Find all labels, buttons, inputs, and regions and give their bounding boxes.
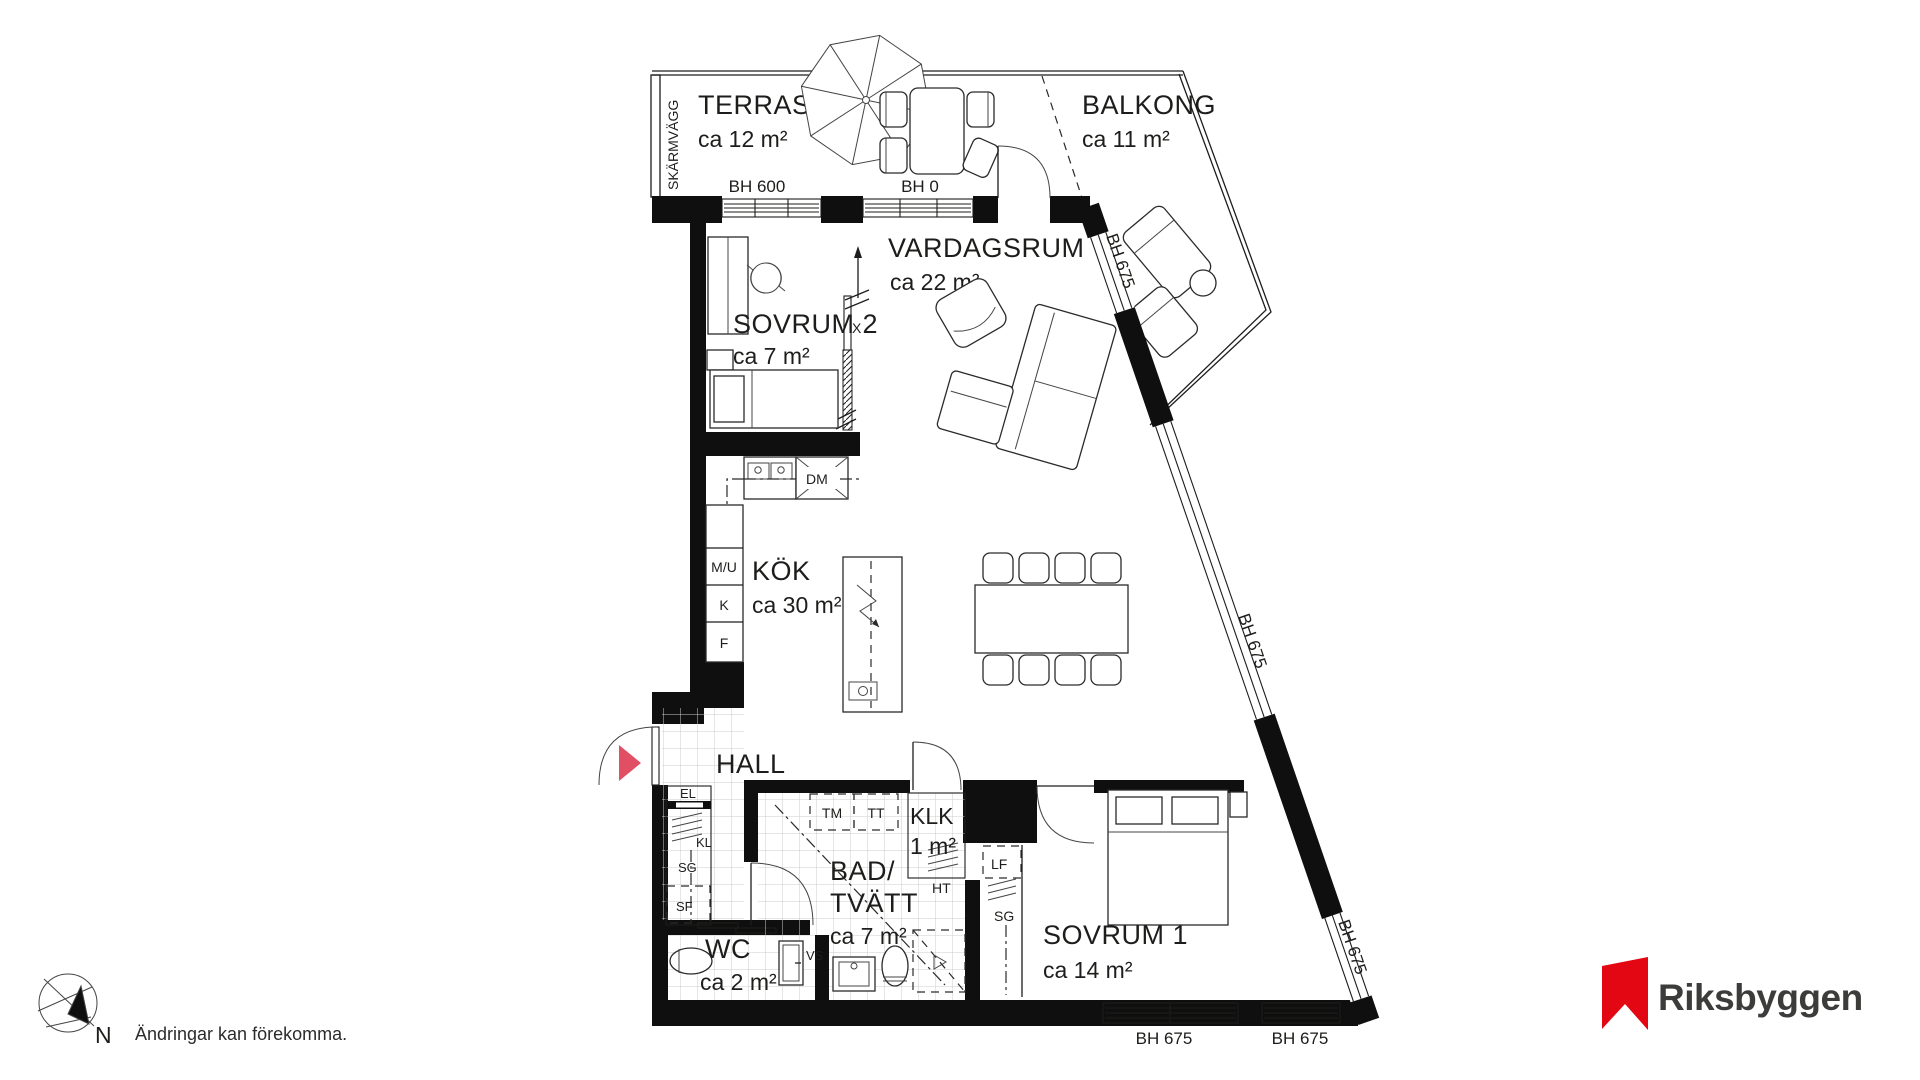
room-area-balkong: ca 11 m²	[1082, 126, 1170, 152]
room-area-bad: ca 7 m²	[830, 923, 907, 949]
electrical-cabinet-label: EL	[680, 786, 696, 801]
closet-label-lf: LF	[991, 856, 1007, 872]
brand-logo: Riksbyggen	[1602, 957, 1863, 1030]
room-label-hall: HALL	[716, 749, 786, 779]
riksbyggen-logo-icon	[1602, 957, 1648, 1030]
room-label-bad-line2: TVÄTT	[830, 888, 918, 918]
sink-icon	[744, 457, 796, 499]
room-area-klk: 1 m²	[910, 833, 956, 859]
toilet-icon	[882, 946, 908, 986]
bedroom1-closets: LF SG	[983, 845, 1022, 997]
floor-plan-page: SKÄRMVÄGG TERRASS ca 12 m² BH 600 BH 0 B…	[0, 0, 1920, 1080]
screen-wall-label: SKÄRMVÄGG	[665, 100, 681, 190]
compass: N Ändringar kan förekomma.	[38, 974, 347, 1048]
window-head-label: BH 675	[1272, 1029, 1329, 1048]
ceiling-fan-icon	[747, 263, 785, 293]
klk-door-icon	[913, 742, 961, 790]
towel-dryer-label: HT	[932, 880, 951, 896]
kitchen-island-icon	[843, 557, 902, 712]
room-label-wc: WC	[705, 934, 751, 964]
freezer-label: F	[720, 635, 729, 651]
kitchen-cabinets: M/U K F	[706, 505, 743, 662]
closet-label-kl: KL	[696, 835, 712, 850]
hall-floor	[662, 708, 744, 920]
window-head-label: BH 675	[1136, 1029, 1193, 1048]
closet-label-sg2: SG	[994, 908, 1014, 924]
shaft-label-vs: VS	[806, 948, 824, 963]
washbasin-icon	[833, 957, 875, 991]
screen-wall	[651, 75, 660, 197]
floor-plan-drawing: SKÄRMVÄGG TERRASS ca 12 m² BH 600 BH 0 B…	[0, 0, 1920, 1080]
balcony-door-icon	[998, 146, 1050, 198]
compass-icon	[38, 974, 97, 1032]
microwave-oven-label: M/U	[711, 559, 737, 575]
bed-icon	[710, 370, 838, 428]
window-head-label: BH 600	[729, 177, 786, 196]
room-label-bad-line1: BAD/	[830, 856, 895, 886]
disclaimer-text: Ändringar kan förekomma.	[135, 1024, 347, 1044]
room-area-sovrum2: ca 7 m²	[733, 343, 810, 369]
tumble-dryer-label: TT	[867, 805, 885, 821]
bedroom-2: SOVRUM 2 ca 7 m²	[707, 237, 878, 430]
dining-table-icon	[975, 553, 1128, 685]
room-label-vardagsrum: VARDAGSRUM	[888, 233, 1085, 263]
entrance-door-icon	[599, 727, 659, 785]
room-label-sovrum2: SOVRUM 2	[733, 309, 878, 339]
dishwasher-label: DM	[806, 471, 828, 487]
fridge-label: K	[719, 597, 729, 613]
room-area-kok: ca 30 m²	[752, 592, 842, 618]
room-label-klk: KLK	[910, 803, 954, 829]
bedside-table-icon	[707, 350, 733, 370]
room-area-terrass: ca 12 m²	[698, 126, 788, 152]
washing-machine-label: TM	[822, 805, 842, 821]
double-bed-icon	[1108, 790, 1247, 925]
bedroom1-door-icon	[1037, 786, 1094, 843]
closet-label-sg: SG	[678, 860, 697, 875]
room-area-wc: ca 2 m²	[700, 969, 777, 995]
bedside-table-icon	[1230, 792, 1247, 817]
window-head-label: BH 0	[901, 177, 939, 196]
room-label-balkong: BALKONG	[1082, 90, 1216, 120]
room-area-sovrum1: ca 14 m²	[1043, 957, 1133, 983]
room-label-kok: KÖK	[752, 556, 811, 586]
entrance-arrow-icon	[619, 745, 641, 781]
shaft-cabinet-icon	[779, 941, 803, 985]
compass-north-label: N	[95, 1022, 112, 1048]
room-label-sovrum1: SOVRUM 1	[1043, 920, 1188, 950]
closet-label-sf: SF	[676, 899, 693, 914]
brand-wordmark: Riksbyggen	[1658, 977, 1863, 1018]
dishwasher-icon: DM	[796, 457, 860, 499]
